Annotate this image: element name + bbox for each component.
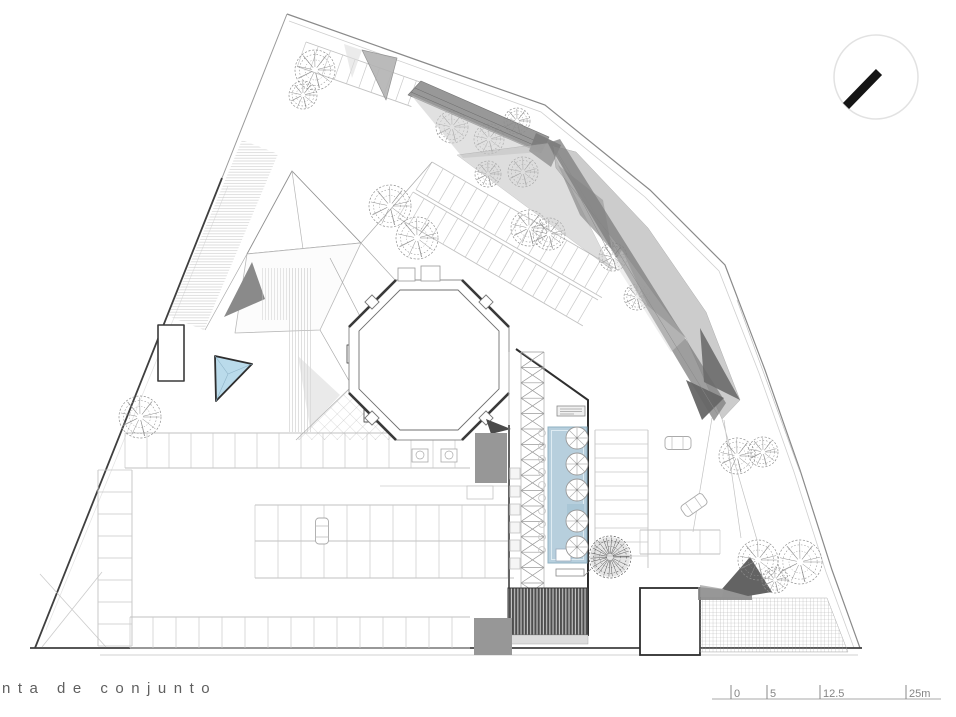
tree-icon (119, 396, 161, 438)
stall-row (98, 470, 132, 646)
octagon-top-annex-a (398, 268, 415, 281)
service-block-upper (475, 433, 507, 483)
car-icon (680, 492, 709, 518)
pool-deck-step (508, 635, 588, 644)
umbrella-icon (566, 510, 588, 532)
plaza-paving (640, 300, 848, 655)
planter-icon (510, 468, 520, 479)
bench (556, 569, 584, 576)
tree-icon (778, 540, 822, 584)
scale-label: 0 (734, 688, 740, 700)
service-block-lower (474, 618, 512, 655)
drawing-title: nta de conjunto (2, 680, 217, 697)
umbrella-icon (566, 427, 588, 449)
scale-label: 25m (909, 688, 930, 700)
tree-icon (289, 81, 317, 109)
stall-row (130, 617, 470, 648)
planter-icon (510, 558, 520, 569)
planter-icon (510, 540, 520, 551)
stall-row (640, 530, 720, 554)
umbrella-icon (566, 479, 588, 501)
tree-icon (396, 217, 438, 259)
car-icon (665, 437, 691, 450)
umbrella-icon (566, 453, 588, 475)
tree-icon (719, 438, 755, 474)
scale-label: 12.5 (823, 688, 844, 700)
paved-plaza (700, 598, 848, 652)
umbrella-icon (566, 536, 588, 558)
scale-bar: 0 5 12.5 25m (712, 685, 941, 700)
boundary-left (35, 178, 222, 648)
skylight-triangle (215, 356, 252, 401)
planter-icon (510, 522, 520, 533)
pool-deck-striped (508, 588, 588, 635)
entry-building (640, 588, 700, 655)
scale-label: 5 (770, 688, 776, 700)
north-indicator (834, 35, 918, 119)
planter-icon (510, 486, 520, 497)
plan-canvas: 0 5 12.5 25m nta de conjunto (0, 0, 956, 717)
stall-row (255, 505, 514, 541)
canopy-apex-triangle (362, 50, 397, 100)
court-wall (158, 325, 184, 381)
pool-label-box (557, 406, 585, 416)
octagon-building (349, 266, 511, 440)
planters (510, 468, 520, 569)
roof-hatch-strip-a (262, 268, 288, 320)
ramp-hatch-tail (700, 585, 724, 597)
octagon-entry-chevron (486, 419, 511, 434)
site-plan-svg: 0 5 12.5 25m (0, 0, 956, 717)
tree-icon (762, 567, 788, 593)
octagon-top-annex-b (421, 266, 440, 281)
tree-dense-icon (589, 536, 631, 578)
car-icon (316, 518, 329, 544)
octagon-inner (359, 290, 499, 430)
terrace-box (467, 486, 493, 499)
stall-row (255, 541, 514, 578)
planter-icon (510, 504, 520, 515)
